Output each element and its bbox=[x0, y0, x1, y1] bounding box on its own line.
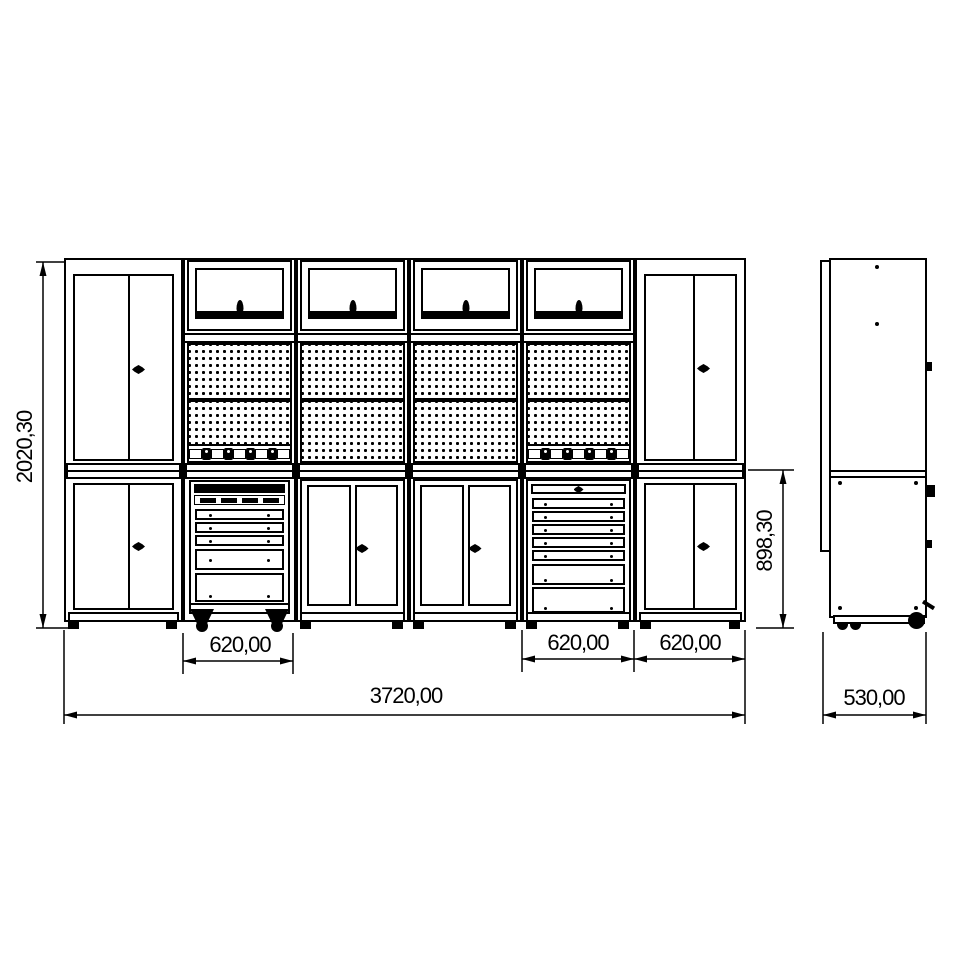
dim-label-module-width-2: 620,00 bbox=[547, 630, 608, 656]
dim-label-depth: 530,00 bbox=[843, 685, 904, 711]
drawing-canvas: 2020,30 898,30 620,00 620,00 620,00 3720… bbox=[0, 0, 960, 960]
dim-label-overall-width: 3720,00 bbox=[370, 683, 443, 709]
dim-label-bench-height: 898,30 bbox=[752, 510, 778, 571]
dim-label-module-width-3: 620,00 bbox=[659, 630, 720, 656]
dim-label-module-width-1: 620,00 bbox=[209, 632, 270, 658]
dim-label-overall-height: 2020,30 bbox=[12, 411, 38, 484]
dimension-lines bbox=[0, 0, 960, 960]
